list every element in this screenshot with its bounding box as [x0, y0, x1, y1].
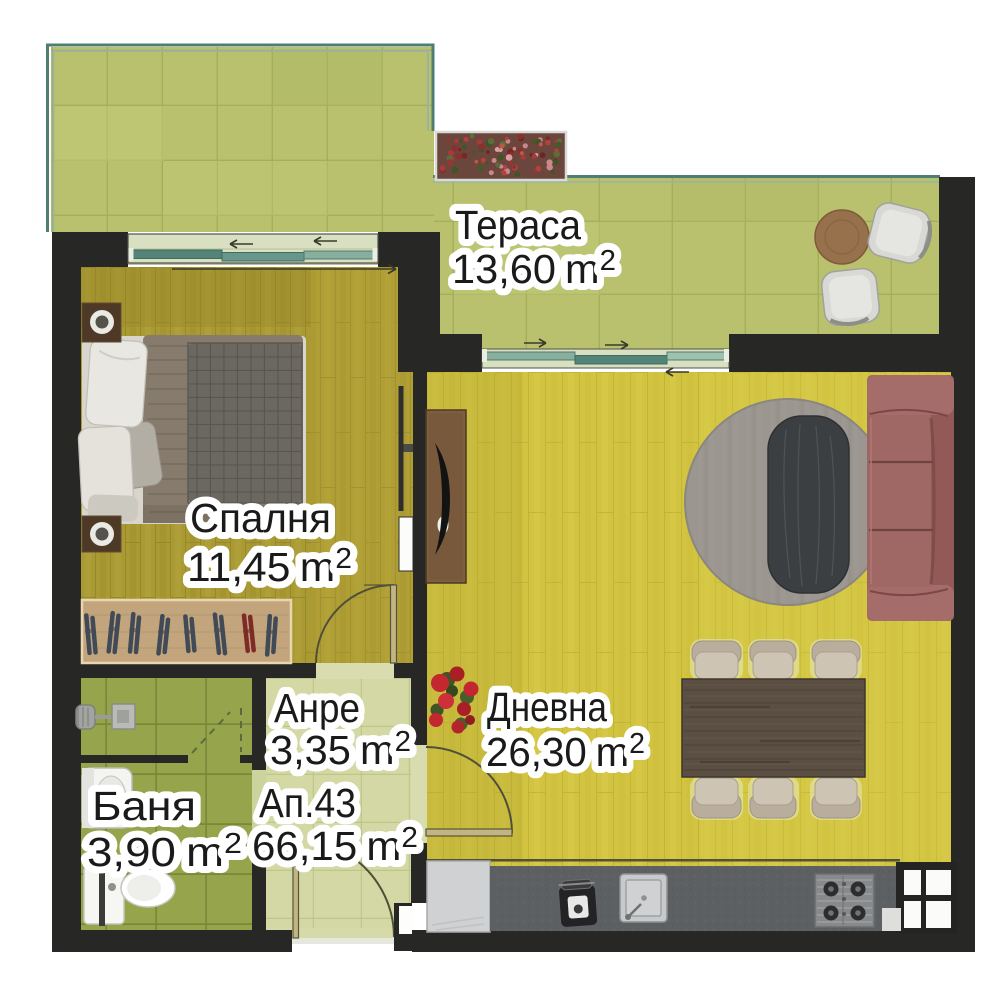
svg-text:Анре: Анре: [274, 685, 360, 731]
svg-text:11,45m2: 11,45m2: [187, 543, 352, 590]
svg-text:13,60m2: 13,60m2: [452, 245, 616, 292]
svg-text:Тераса: Тераса: [455, 202, 581, 248]
svg-text:26,30m2: 26,30m2: [486, 728, 645, 775]
svg-text:Баня: Баня: [92, 783, 196, 829]
svg-text:66,15m2: 66,15m2: [252, 822, 418, 869]
svg-text:Спалня: Спалня: [190, 495, 331, 541]
svg-text:Дневна: Дневна: [487, 684, 607, 730]
svg-text:3,35m2: 3,35m2: [270, 726, 411, 773]
svg-text:Ап.43: Ап.43: [259, 780, 356, 826]
svg-text:3,90m2: 3,90m2: [87, 828, 242, 875]
